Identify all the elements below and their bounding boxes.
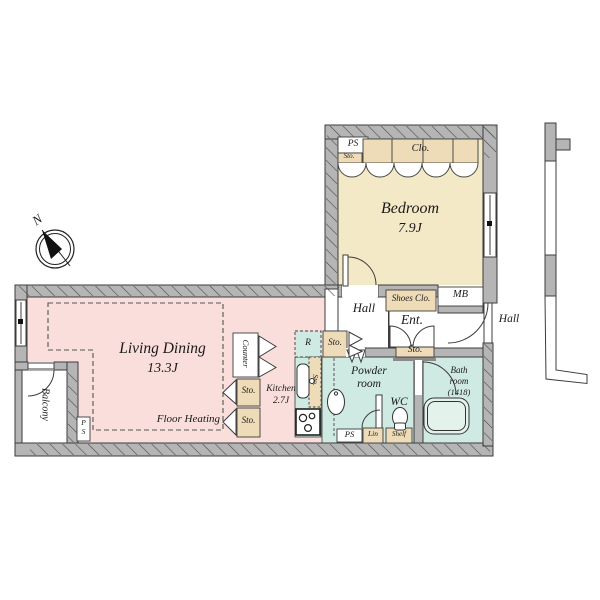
floorplan-drawing: [0, 0, 600, 600]
refrigerator-label: R: [295, 338, 321, 348]
shoes-closet-door-left: [390, 326, 411, 347]
storage-label-kitchen-tall: Sto.: [311, 365, 319, 395]
common-hall-label: Hall: [489, 313, 529, 325]
kitchen-size-label: 2.7J: [256, 396, 306, 406]
balcony-label: Balcony: [39, 374, 50, 434]
closet-sliding-doors: [338, 163, 478, 177]
bath-room-label-1: Bath: [440, 366, 478, 376]
balcony-door-leaf: [28, 363, 54, 369]
living-dining-size-label: 13.3J: [85, 361, 240, 376]
entrance-label: Ent.: [390, 313, 434, 328]
shoes-closet-label: Shoes Clo.: [386, 294, 436, 304]
bath-room-size-label: (1418): [436, 388, 482, 397]
bath-room-label-2: room: [438, 377, 480, 387]
powder-room-label-2: room: [330, 378, 408, 390]
floor-heating-label: Floor Heating: [105, 414, 220, 426]
pipe-space-label-powder: PS: [337, 430, 362, 439]
wc-label: WC: [385, 396, 413, 408]
pipe-space-label-top: PS: [338, 139, 368, 149]
shelf-label: Shelf: [386, 431, 412, 439]
corridor-storage-bifold: [349, 332, 362, 346]
storage-label-corridor: Sto.: [323, 338, 347, 348]
pipe-space-p-label: P: [77, 419, 90, 427]
mail-box-label: MB: [438, 289, 483, 300]
powder-room-label-1: Powder: [330, 365, 408, 377]
kitchen-name-label: Kitchen: [256, 384, 306, 394]
linen-label: Lin: [363, 430, 383, 438]
hall-label: Hall: [338, 302, 390, 316]
common-hall-wall: [545, 123, 587, 384]
floorplan: N Bedroom 7.9J Clo. PS Sto. Living Dinin…: [0, 0, 600, 600]
storage-label-entrance: Sto.: [396, 345, 434, 355]
shoes-closet-door-right: [413, 326, 434, 347]
pipe-space-s-label: S: [77, 428, 90, 436]
compass-icon: [36, 230, 74, 268]
bedroom-name-label: Bedroom: [340, 200, 480, 217]
bedroom-size-label: 7.9J: [340, 221, 480, 236]
storage-label-kitchen-2: Sto.: [237, 416, 260, 426]
closet-label: Clo.: [363, 143, 478, 154]
bedroom-door-leaf: [343, 255, 348, 286]
living-dining-name-label: Living Dining: [85, 341, 240, 358]
counter-label: Counter: [241, 331, 250, 376]
storage-label-top: Sto.: [337, 153, 361, 161]
